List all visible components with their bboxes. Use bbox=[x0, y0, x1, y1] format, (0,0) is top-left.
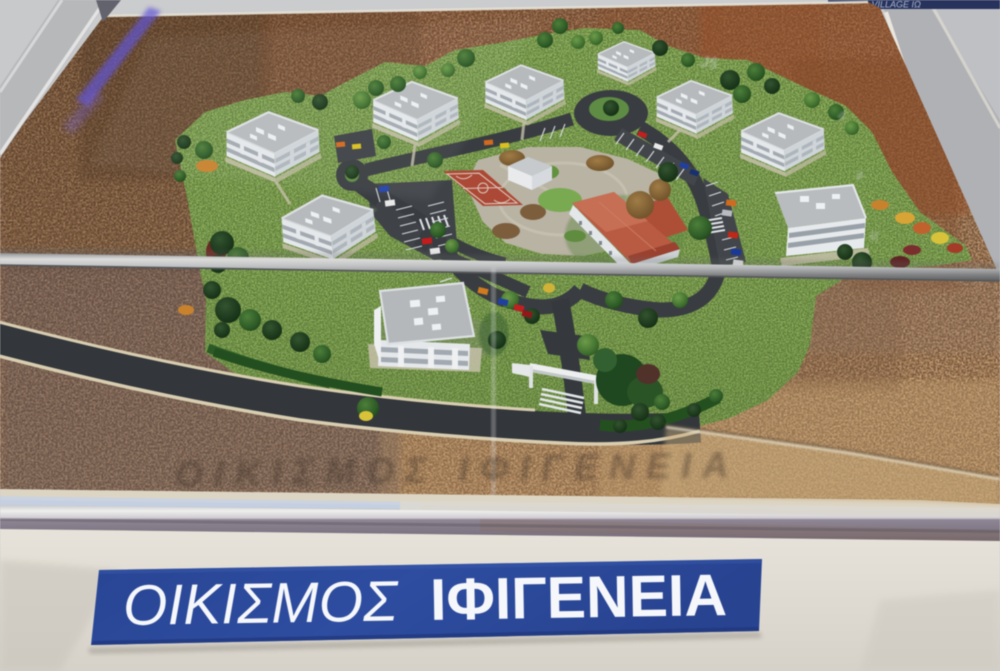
svg-text:ΙΦΙΓΕΝΕΙΑ: ΙΦΙΓΕΝΕΙΑ bbox=[429, 562, 727, 633]
svg-text:J5: J5 bbox=[699, 54, 720, 73]
svg-text:ΟΙΚΙΣΜΟΣ: ΟΙΚΙΣΜΟΣ bbox=[123, 569, 400, 638]
